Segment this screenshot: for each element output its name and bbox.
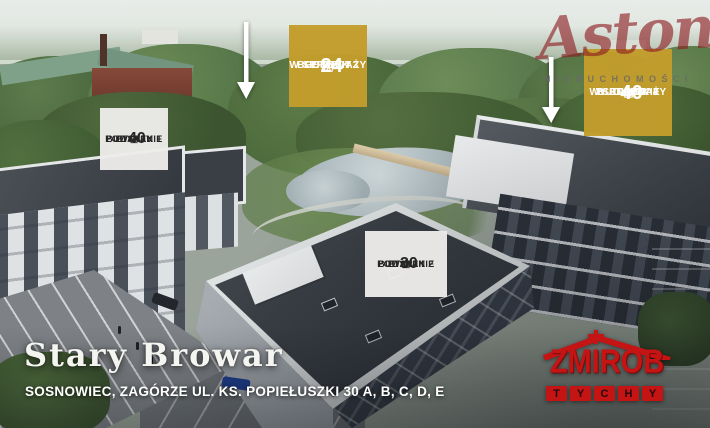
- church: [0, 22, 195, 100]
- stage-badge-etap-1: ETAP I W SPRZEDAŻY 24 BUDYNEK 3 GOTOWY: [289, 25, 367, 107]
- city-letter: H: [618, 386, 639, 401]
- pedestrian: [118, 326, 121, 334]
- down-arrow-icon: [236, 22, 256, 100]
- city-letter: Y: [570, 386, 591, 401]
- project-title: Stary Browar: [24, 336, 284, 374]
- status-label: W BUDOWIE: [596, 87, 660, 99]
- city-letter: T: [546, 386, 567, 401]
- poster-canvas: ETAP I W SPRZEDAŻY 24 BUDYNEK 3 GOTOWY E…: [0, 0, 710, 428]
- developer-logo: ZMIROB T Y C H Y: [540, 330, 674, 408]
- stage-badge-etap-4: ETAP IV 40 BUDYNEK 1 POWSTANIE: [100, 108, 168, 170]
- city-letter: C: [594, 386, 615, 401]
- developer-city: T Y C H Y: [546, 386, 663, 401]
- city-letter: Y: [642, 386, 663, 401]
- church-tower: [100, 34, 107, 66]
- developer-name: ZMIROB: [540, 346, 674, 379]
- down-arrow-icon: [541, 57, 561, 124]
- status-label: GOTOWY: [304, 60, 352, 72]
- stage-badge-etap-3: ETAP III 30 BUDYNEK 2 POWSTANIE: [365, 231, 447, 297]
- status-label: POWSTANIE: [105, 134, 162, 144]
- status-label: POWSTANIE: [377, 259, 434, 269]
- stage-badge-etap-2: ETAP II W SPRZEDAŻY 40 BUDYNEK 4 W BUDOW…: [584, 49, 672, 136]
- project-address: SOSNOWIEC, ZAGÓRZE UL. KS. POPIEŁUSZKI 3…: [25, 384, 445, 399]
